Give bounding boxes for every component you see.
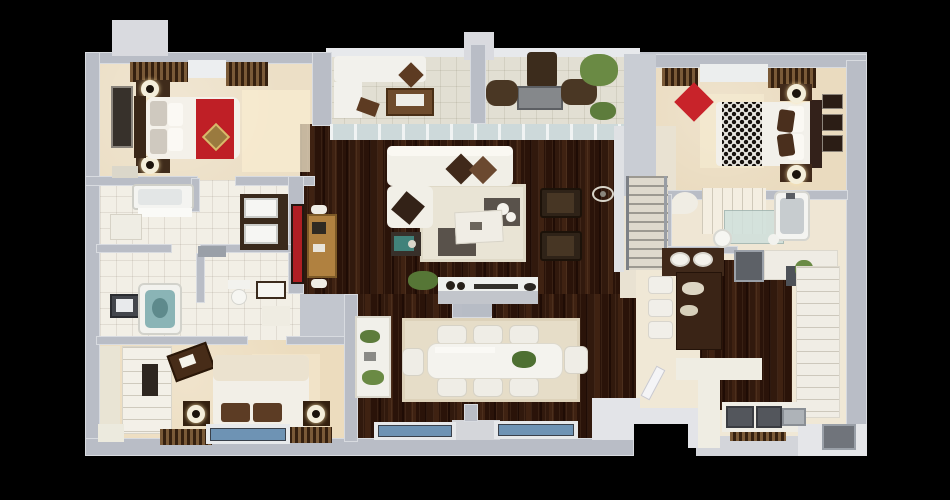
wall-right xyxy=(846,60,867,448)
speaker-1 xyxy=(446,281,455,290)
patio-chair-top xyxy=(527,52,557,88)
centerpiece xyxy=(512,351,536,368)
lamp-b-bottom xyxy=(787,165,806,184)
bed-c-pillow-1 xyxy=(221,403,250,422)
bar-bowl-2 xyxy=(693,252,713,267)
dining-chair-2 xyxy=(473,325,503,345)
artwork-bedroom-a xyxy=(111,86,133,148)
bed-a-pillow-1 xyxy=(150,101,167,126)
window-b xyxy=(700,64,768,82)
bed-b-headboard xyxy=(810,100,822,168)
bath-shelf xyxy=(262,306,290,326)
appliance-1 xyxy=(726,406,754,428)
floor-lamp-center xyxy=(600,191,606,197)
sofa-back xyxy=(387,146,513,156)
dining-chair-4 xyxy=(437,377,467,397)
peninsula-counter xyxy=(676,358,762,380)
bathtub-right-basin xyxy=(780,198,804,234)
red-artwork xyxy=(291,204,304,284)
shelf-plant-1 xyxy=(360,330,380,343)
bar-flowers-1 xyxy=(682,282,704,295)
wall-bedroom-c-north-2 xyxy=(286,336,348,345)
armchair-1-seat xyxy=(547,193,574,213)
vent-slats-left xyxy=(160,429,212,445)
bed-b-pillow-4 xyxy=(777,133,796,157)
curtain-a-right xyxy=(226,62,268,86)
stair-rail-left xyxy=(626,176,629,270)
teal-cup xyxy=(408,240,416,248)
armchair-2-seat xyxy=(547,236,574,256)
chimney-left xyxy=(112,20,168,56)
floor-plan xyxy=(0,0,950,500)
console-item-2 xyxy=(313,244,325,252)
patio-table xyxy=(517,86,563,110)
jacuzzi-jet xyxy=(152,298,168,318)
vessel-sink-1 xyxy=(244,198,278,218)
notch-opening xyxy=(634,424,696,500)
tub-faucet xyxy=(786,193,795,199)
plate-2 xyxy=(506,212,516,222)
wall-window-stub xyxy=(452,420,500,440)
peninsula-side xyxy=(698,378,720,448)
window-c xyxy=(210,428,286,441)
balcony-divider-wall xyxy=(470,44,486,124)
wall-stub-small xyxy=(464,404,478,422)
media-console-front xyxy=(438,291,538,304)
media-plant xyxy=(408,271,438,290)
linen-cabinet xyxy=(110,214,142,240)
wall-art-3 xyxy=(822,135,843,152)
bidet xyxy=(256,281,286,299)
shelf-plant-2 xyxy=(362,370,384,385)
wall-bath-mid-1 xyxy=(96,244,172,253)
vent-slats-right xyxy=(286,427,332,443)
kitchen-mat xyxy=(730,432,786,441)
dining-chair-1 xyxy=(437,325,467,345)
dining-table-sheen xyxy=(435,347,495,353)
wall-bath-inner-2 xyxy=(196,253,205,303)
patio-chair-left xyxy=(486,80,518,106)
speaker-2 xyxy=(457,282,465,290)
dining-window-2 xyxy=(498,424,574,436)
bed-a-pillow-4 xyxy=(168,128,183,151)
console-stool-bottom xyxy=(311,279,327,288)
bed-c-duvet xyxy=(213,355,309,381)
lamp-c-left xyxy=(187,405,205,423)
bar-flowers-2 xyxy=(680,305,698,316)
bar-bowl-1 xyxy=(670,252,690,267)
wall-left xyxy=(85,52,100,456)
balcony-tray xyxy=(396,94,424,106)
wall-bedroom-a-balcony xyxy=(312,52,332,126)
dining-chair-3 xyxy=(509,325,539,345)
media-disc xyxy=(524,283,536,291)
kitchen-sink xyxy=(782,408,806,426)
door-threshold xyxy=(198,246,226,257)
media-pedestal xyxy=(462,304,492,316)
sunlight-bedroom-a xyxy=(242,90,310,172)
wardrobe-niche xyxy=(142,364,158,396)
wall-living-stairs xyxy=(614,126,624,272)
pedestal xyxy=(768,234,779,245)
vanity-ledge xyxy=(138,208,192,217)
bath-floor-lamp xyxy=(672,192,698,214)
toilet-tank xyxy=(228,280,250,289)
bar-stool-3 xyxy=(648,321,673,339)
bathtub-left-basin xyxy=(138,189,182,205)
console-item-1 xyxy=(312,222,326,234)
vessel-sink-2 xyxy=(244,224,278,244)
dining-chair-7 xyxy=(402,348,424,376)
soundbar xyxy=(474,284,518,289)
toilet-right xyxy=(713,229,732,248)
coffee-table-item xyxy=(470,222,482,230)
wall-art-2 xyxy=(822,114,843,131)
ac-unit xyxy=(822,424,856,450)
dining-chair-8 xyxy=(564,346,588,374)
bar-stool-2 xyxy=(648,299,673,317)
bed-b-pillow-3 xyxy=(777,109,796,133)
dining-window-1 xyxy=(378,425,452,437)
shelf-item xyxy=(364,352,376,361)
wall-bedroom-b-left xyxy=(624,54,656,196)
bed-a-pillow-3 xyxy=(168,103,183,126)
dining-chair-5 xyxy=(473,377,503,397)
bed-b-damask-throw xyxy=(722,102,762,166)
wall-mirror-glass xyxy=(116,299,133,312)
bed-a-pillow-2 xyxy=(150,129,167,154)
cabinet-run xyxy=(796,266,840,418)
window-a xyxy=(188,60,226,78)
glazing-living-balcony xyxy=(330,124,634,140)
dining-chair-6 xyxy=(509,377,539,397)
balcony-plant-2 xyxy=(590,102,616,120)
bed-a-headboard xyxy=(134,96,146,158)
dresser-corner xyxy=(98,424,124,442)
lamp-b-top xyxy=(787,84,806,103)
decor-bedroom-a xyxy=(112,166,138,178)
toilet-bowl xyxy=(231,289,247,305)
curtain-a-left xyxy=(130,62,188,82)
wall-art-1 xyxy=(822,94,843,109)
bed-c-pillow-2 xyxy=(253,403,282,422)
wall-bedroom-c-north-1 xyxy=(96,336,248,345)
appliance-2 xyxy=(756,406,782,428)
lamp-c-right xyxy=(307,405,325,423)
bar-stool-1 xyxy=(648,276,673,294)
shower-pan xyxy=(734,250,764,282)
console-stool-top xyxy=(311,205,327,214)
balcony-sofa-chaise xyxy=(334,82,362,118)
balcony-plant-1 xyxy=(580,54,618,86)
